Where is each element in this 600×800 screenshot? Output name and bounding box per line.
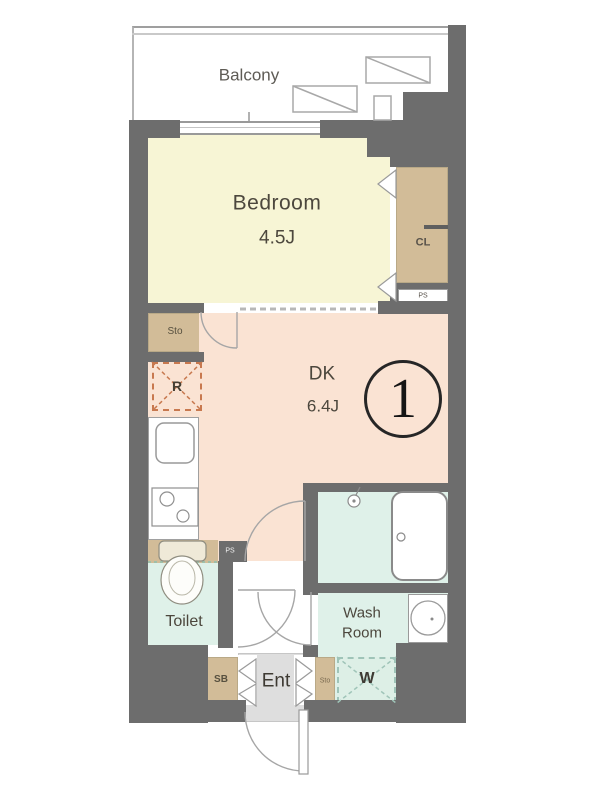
storage-entrance-label: Sto [320,678,331,685]
shoebox-door-strip [237,655,257,705]
washroom-label-line1: Wash [343,606,381,621]
hallway-floor [233,561,303,655]
wall-block-top-right [403,92,465,167]
unit-number: 1 [389,367,417,431]
toilet-top-strip [148,540,218,563]
bedroom-floor [148,133,390,303]
wall-bath-west [303,483,318,595]
storage-entrance-door-strip [294,655,313,705]
wall-storage-top [148,303,204,313]
unit-number-badge: 1 [364,360,442,438]
bedroom-label: Bedroom [233,193,322,214]
kitchen-counter [148,417,199,540]
pipe-space-upper-label: PS [418,293,427,300]
floorplan-canvas: Balcony Bedroom 4.5J CL PS Sto R DK 6.4J… [0,0,600,800]
wall-closet-bottom [390,283,465,289]
closet-floor [396,167,448,283]
wall-bottom-seg-left [190,700,246,722]
wall-corner-bottom-right [396,643,448,723]
wall-storage-bottom [148,352,204,362]
entrance-label: Ent [262,672,291,691]
dk-label: DK [309,365,335,384]
wall-toilet-right [218,561,233,648]
closet-door-strip [390,167,396,283]
wall-top-step1 [320,120,367,138]
dk-size-label: 6.4J [307,398,339,415]
wall-boundary-right [378,301,465,314]
washroom-label-line2: Room [342,626,382,641]
balcony-railing-line [132,33,448,35]
wall-bath-top [303,483,465,492]
window-band [180,121,320,135]
washroom-door-gap [303,593,318,645]
toilet-label: Toilet [165,614,202,630]
bedroom-size-label: 4.5J [259,229,295,248]
wall-left [129,120,148,655]
toilet-floor [148,563,218,645]
shoebox-label: SB [214,675,228,685]
balcony-label: Balcony [219,67,279,84]
washer-space-label: W [359,671,374,687]
bathroom-floor [318,492,448,583]
pipe-space-kitchen-label: PS [225,548,234,555]
window-mid-line [180,127,320,128]
refrigerator-label: R [172,379,182,393]
wall-top-left-seg [129,120,180,138]
wall-bath-west-lower [303,645,318,657]
closet-label: CL [416,238,431,249]
basin-counter [408,594,448,643]
wall-bath-bottom [303,583,465,593]
storage-hall-label: Sto [167,327,182,337]
wall-ps-kitchen-stub [241,541,247,562]
